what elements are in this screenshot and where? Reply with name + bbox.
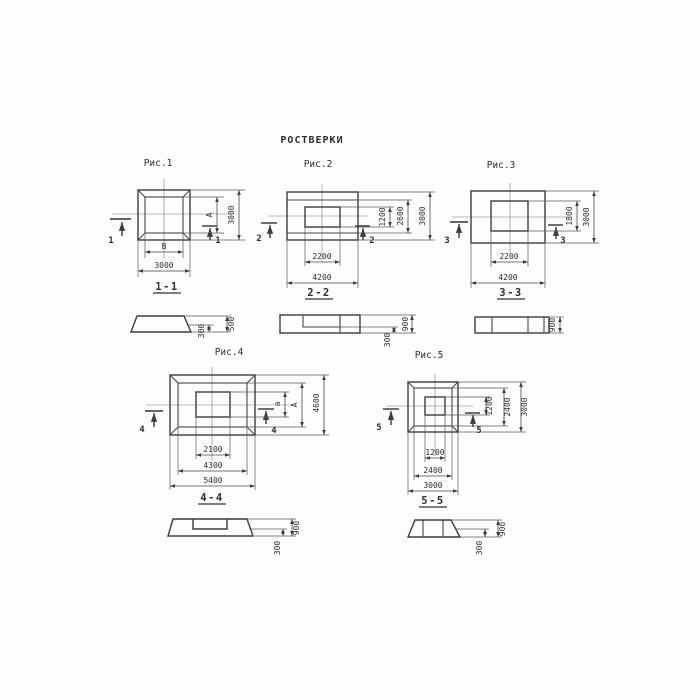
fig5-dim-outer-width-value: 3000 [423,481,442,490]
fig4-section-view: 900 300 [168,519,301,555]
fig4-dim-recess-width: 2100 [196,417,230,459]
fig2-dim-recess-width-value: 2200 [312,252,331,261]
fig1-dim-outer-height-value: 3000 [227,205,236,224]
fig1-dim-inner-width-value: B [162,242,167,251]
fig4-cut-marker-left: 4 [139,411,163,435]
fig4-section-ledge-value: 300 [273,541,282,556]
fig4-cut-label-left: 4 [139,425,145,435]
fig4-dim-recess-height-value: a [273,401,282,406]
fig1-dim-inner-height-value: A [205,212,214,217]
fig4-dim-outer-width-value: 5400 [203,476,222,485]
fig1-section-view: 500 300 [131,316,236,338]
fig2-section-height-value: 900 [401,317,410,332]
fig3-centerlines [452,183,572,258]
fig3-dim-inner-height: 1800 [528,201,581,231]
fig5-cut-marker-left: 5 [376,409,399,433]
fig1-section-height-value: 500 [227,317,236,332]
fig2-label: Рис.2 [304,159,333,170]
figure-4: Рис.4 4 4 a [139,347,329,555]
fig3-dim-inner-height-value: 1800 [565,206,574,225]
fig2-dim-outer-width: 4200 [287,240,358,288]
fig2-section-ledge-value: 300 [383,333,392,348]
fig5-dim-inner-height: 2400 [452,388,512,426]
fig3-dim-inner-width-value: 2200 [499,252,518,261]
page-title: РОСТВЕРКИ [280,135,343,146]
fig5-cut-label-left: 5 [376,423,381,433]
fig3-label: Рис.3 [487,160,516,171]
fig4-label: Рис.4 [215,347,244,358]
grillage-drawing: РОСТВЕРКИ Рис.1 1 1 A [0,0,700,700]
fig4-dim-inner-height-value: A [290,402,299,407]
figure-2: Рис.2 2 2 1200 [256,159,435,347]
fig5-cut-marker-right: 5 [465,413,482,436]
fig1-cut-label-right: 1 [215,236,220,246]
fig2-cut-label-left: 2 [256,234,261,244]
fig3-dim-inner-width: 2200 [491,231,528,267]
figure-3: Рис.3 3 3 1800 3000 [444,160,599,333]
fig2-section-view: 900 300 [280,315,416,347]
fig4-dim-recess-height: a [230,392,289,417]
fig1-cut-label-left: 1 [108,236,113,246]
fig5-section-view: 900 300 [408,520,507,555]
fig3-dim-outer-width: 4200 [471,243,545,288]
fig3-section-height-value: 900 [548,318,557,333]
fig3-dim-outer-height-value: 3000 [582,207,591,226]
fig1-dim-outer-width-value: 3000 [154,261,173,270]
drawing-sheet: РОСТВЕРКИ Рис.1 1 1 A [0,0,700,700]
fig3-cut-label-left: 3 [444,236,449,246]
fig5-section-height-value: 900 [498,522,507,537]
fig5-dim-recess-width-value: 1200 [425,448,444,457]
fig2-dim-outer-width-value: 4200 [312,273,331,282]
fig3-cut-label-right: 3 [560,236,565,246]
fig2-section-label: 2-2 [307,287,330,299]
fig1-dim-outer-height: 3000 [190,190,245,240]
fig2-centerlines [268,184,368,262]
fig1-dim-inner-height: A [183,197,224,233]
fig4-dim-inner-width-value: 4300 [203,461,222,470]
fig3-dim-outer-width-value: 4200 [498,273,517,282]
fig4-dim-outer-height-value: 4600 [312,393,321,412]
fig5-dim-inner-height-value: 2400 [503,397,512,416]
fig5-dim-outer-height-value: 3000 [520,397,529,416]
fig1-label: Рис.1 [144,158,173,169]
fig4-cut-marker-right: 4 [258,409,277,436]
fig5-plan-outline [408,382,458,432]
fig1-cut-marker-left: 1 [108,219,131,246]
fig3-section-label: 3-3 [499,287,522,299]
fig4-section-height-value: 900 [292,521,301,536]
fig3-section-view: 900 [475,317,564,333]
fig4-section-label: 4-4 [200,492,223,504]
fig2-dim-recess-height: 1200 [340,207,394,227]
fig2-dim-inner-height-value: 2600 [396,206,405,225]
fig4-cut-label-right: 4 [271,426,277,436]
fig5-section-label: 5-5 [421,495,444,507]
fig2-dim-recess-height-value: 1200 [378,207,387,226]
fig2-cut-marker-left: 2 [256,223,277,244]
fig5-dim-recess-height-value: 1200 [485,396,494,415]
fig3-cut-marker-left: 3 [444,222,468,246]
figure-1: Рис.1 1 1 A [108,158,245,338]
fig1-section-label: 1-1 [155,281,178,293]
fig5-dim-inner-width-value: 2400 [423,466,442,475]
fig1-cut-marker-right: 1 [202,226,221,246]
fig4-dim-recess-width-value: 2100 [203,445,222,454]
fig5-label: Рис.5 [415,350,444,361]
fig5-dim-outer-width: 3000 [408,432,458,495]
fig2-cut-label-right: 2 [369,236,374,246]
fig2-dim-outer-height-value: 3000 [418,206,427,225]
fig5-section-ledge-value: 300 [475,541,484,556]
figure-5: Рис.5 5 5 1200 [376,350,529,555]
fig5-cut-label-right: 5 [476,426,481,436]
fig1-section-ledge-value: 300 [197,324,206,339]
